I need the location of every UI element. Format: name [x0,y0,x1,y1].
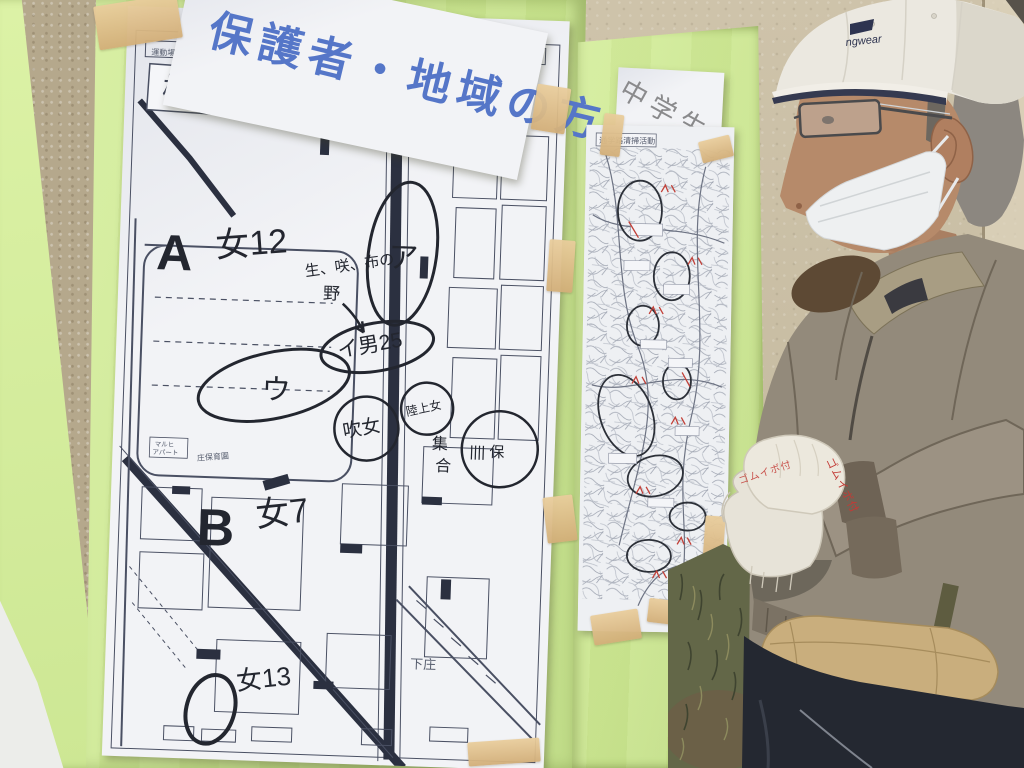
man: ngwear ゴムイボ付 ゴムイボ付 [0,0,1024,768]
sleeve-cuff [846,516,902,578]
nostril [796,203,802,209]
cap-eyelet [932,14,937,19]
photo-scene: 校舎周辺清掃活動 運動場 庄保育園 マルヒ アパート 下庄 A 女12 ア 生、… [0,0,1024,768]
cap-shading [952,0,1024,104]
cap: ngwear [772,0,1024,105]
